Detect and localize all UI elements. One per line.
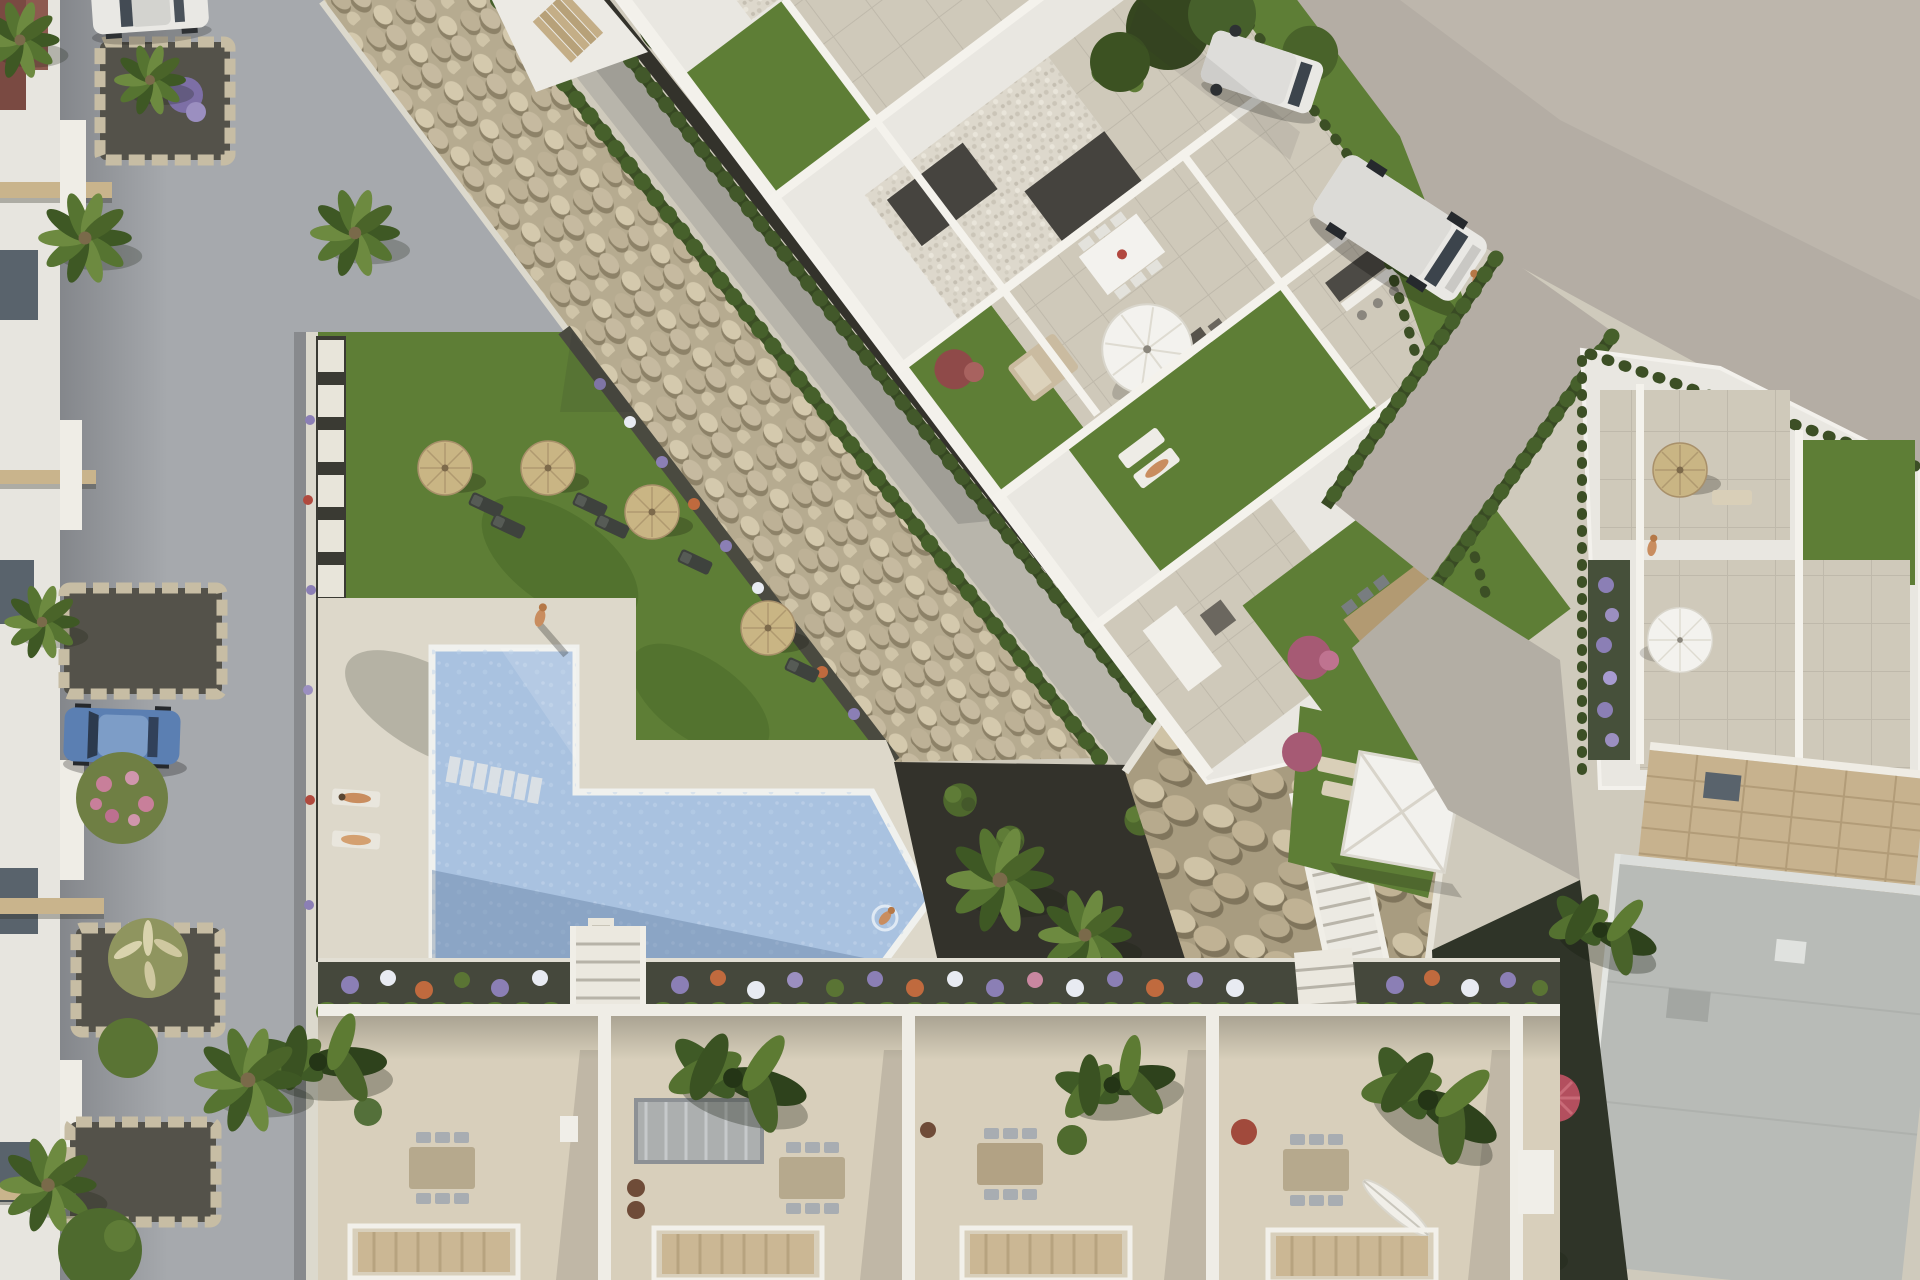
red-potted-plant (1231, 1119, 1257, 1145)
purple-bush (186, 102, 206, 122)
clay-pot (627, 1201, 645, 1219)
pampas-grass (108, 918, 188, 998)
window (0, 250, 38, 320)
patio-back-wall (318, 1004, 1560, 1016)
scene-canvas (0, 0, 1920, 1280)
divider-wall (598, 1004, 611, 1280)
divider-wall (1510, 1004, 1523, 1280)
divider-wall (1206, 1004, 1219, 1280)
potted-plant (354, 1098, 382, 1126)
aerial-render-scene (0, 0, 1920, 1280)
sofa (1518, 1150, 1554, 1214)
potted-plant (1057, 1125, 1087, 1155)
clay-pot (627, 1179, 645, 1197)
small-tree (98, 1018, 158, 1078)
pink-flower-tree (76, 752, 168, 844)
townhouse-patios (194, 1004, 1560, 1280)
bbq-unit (560, 1116, 578, 1142)
divider-wall (902, 1004, 915, 1280)
pink-shrub (1282, 732, 1322, 772)
